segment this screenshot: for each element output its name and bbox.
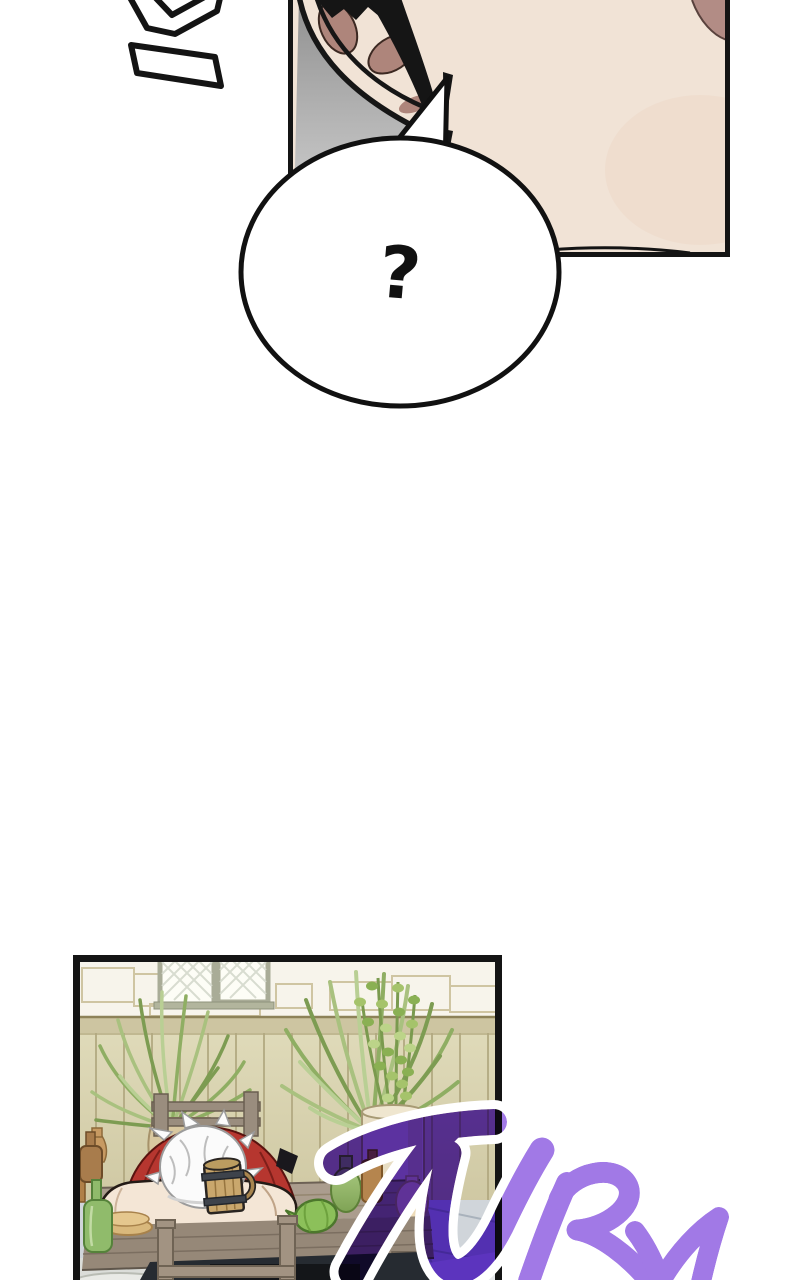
webtoon-page: TURN — [0, 0, 800, 1280]
comic-artwork: ? — [0, 0, 800, 1280]
sfx-turn-white-outline — [0, 0, 800, 1280]
